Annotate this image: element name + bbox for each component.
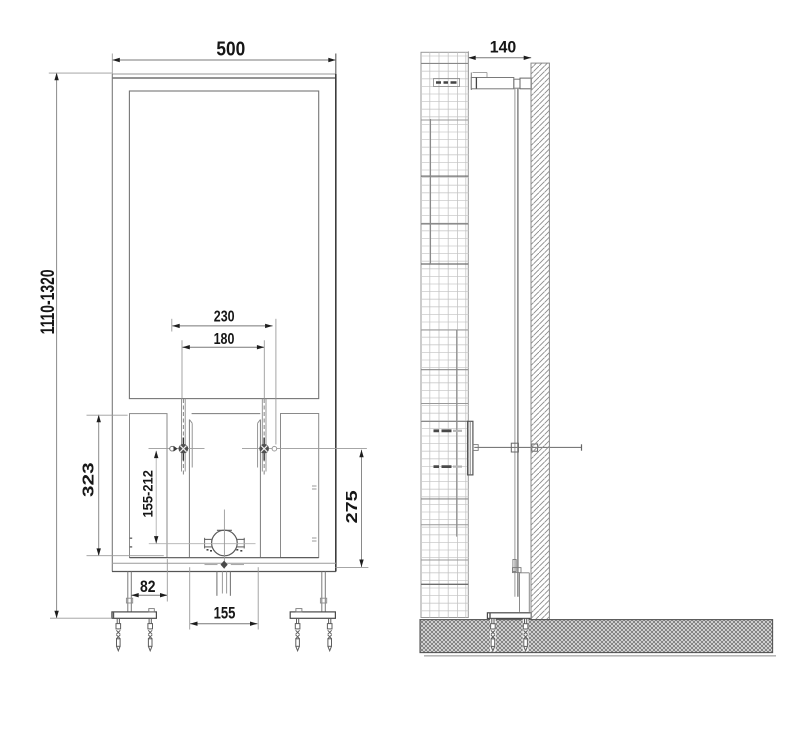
svg-text:323: 323 (80, 462, 97, 497)
svg-text:230: 230 (214, 309, 235, 326)
svg-text:275: 275 (344, 490, 361, 523)
svg-text:180: 180 (214, 331, 235, 348)
svg-text:500: 500 (216, 38, 245, 61)
svg-text:155-212: 155-212 (140, 470, 156, 518)
svg-text:140: 140 (490, 38, 517, 57)
svg-text:82: 82 (140, 577, 156, 596)
svg-text:1110-1320: 1110-1320 (38, 269, 59, 334)
svg-text:155: 155 (214, 605, 236, 623)
